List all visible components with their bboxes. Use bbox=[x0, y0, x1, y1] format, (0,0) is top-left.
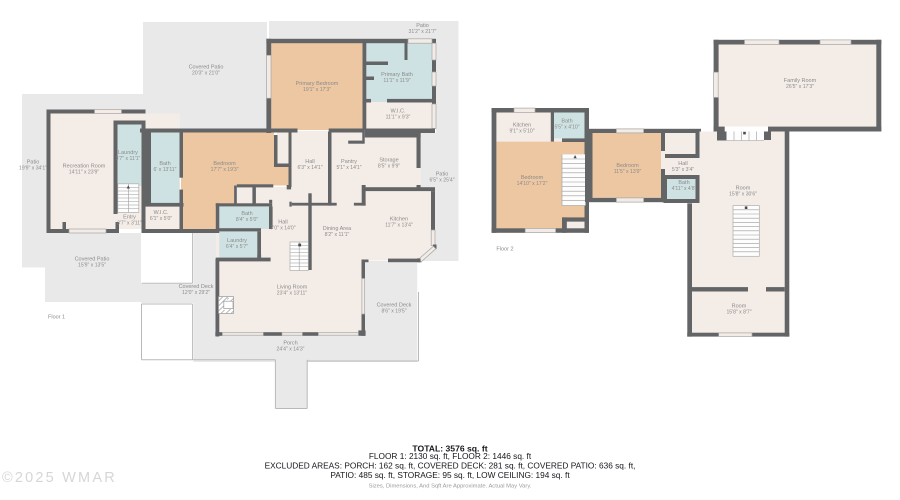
svg-text:9'1" x 5'10": 9'1" x 5'10" bbox=[509, 128, 534, 134]
svg-text:©2025 WMAR: ©2025 WMAR bbox=[2, 470, 117, 486]
svg-text:8'5" x 9'9": 8'5" x 9'9" bbox=[378, 163, 400, 169]
svg-text:19'9" x 34'1": 19'9" x 34'1" bbox=[19, 165, 47, 171]
svg-text:26'5" x 17'3": 26'5" x 17'3" bbox=[786, 84, 814, 90]
svg-text:5'3" x 3'4": 5'3" x 3'4" bbox=[672, 167, 694, 173]
svg-text:31'2" x 21'7": 31'2" x 21'7" bbox=[409, 29, 437, 35]
svg-text:Floor 2: Floor 2 bbox=[496, 247, 513, 253]
svg-text:8'6" x 19'5": 8'6" x 19'5" bbox=[381, 308, 406, 314]
svg-text:5'5" x 4'10": 5'5" x 4'10" bbox=[554, 124, 579, 130]
svg-text:19'1" x 17'3": 19'1" x 17'3" bbox=[303, 87, 331, 93]
svg-text:4'11" x 4'8": 4'11" x 4'8" bbox=[672, 186, 697, 192]
svg-text:11'7" x 13'4": 11'7" x 13'4" bbox=[385, 222, 413, 228]
svg-text:6' x 13'11": 6' x 13'11" bbox=[154, 167, 177, 173]
svg-text:11'1" x 9'3": 11'1" x 9'3" bbox=[386, 114, 411, 120]
svg-text:8'2" x 11'1": 8'2" x 11'1" bbox=[325, 232, 350, 238]
svg-text:5'1" x 14'1": 5'1" x 14'1" bbox=[336, 165, 361, 171]
svg-text:6'5" x 25'4": 6'5" x 25'4" bbox=[429, 177, 454, 183]
svg-text:15'8" x 30'6": 15'8" x 30'6" bbox=[729, 191, 757, 197]
svg-text:12'0" x 29'2": 12'0" x 29'2" bbox=[182, 290, 210, 296]
svg-text:23'4" x 13'11": 23'4" x 13'11" bbox=[277, 290, 308, 296]
svg-text:PATIO: 485 sq. ft, STORAGE: 95: PATIO: 485 sq. ft, STORAGE: 95 sq. ft, L… bbox=[330, 470, 570, 480]
svg-text:20'3" x 21'0": 20'3" x 21'0" bbox=[192, 70, 220, 76]
svg-text:8'4" x 5'0": 8'4" x 5'0" bbox=[236, 217, 258, 223]
svg-text:15'9" x 13'5": 15'9" x 13'5" bbox=[78, 262, 106, 268]
svg-text:6'4" x 5'7": 6'4" x 5'7" bbox=[226, 244, 248, 250]
svg-text:14'11" x 23'9": 14'11" x 23'9" bbox=[69, 169, 100, 175]
svg-text:3'7" x 3'11": 3'7" x 3'11" bbox=[117, 220, 142, 226]
svg-text:11'1" x 11'9": 11'1" x 11'9" bbox=[383, 78, 410, 84]
svg-text:Floor 1: Floor 1 bbox=[48, 315, 65, 321]
svg-text:Sizes, Dimensions, And Sqft Ar: Sizes, Dimensions, And Sqft Are Approxim… bbox=[369, 483, 532, 489]
svg-text:3'7" x 11'1": 3'7" x 11'1" bbox=[116, 156, 141, 162]
svg-text:15'8" x 8'7": 15'8" x 8'7" bbox=[726, 309, 751, 315]
svg-text:17'7" x 19'3": 17'7" x 19'3" bbox=[211, 167, 239, 173]
svg-text:14'10" x 17'2": 14'10" x 17'2" bbox=[517, 181, 548, 187]
svg-text:24'4" x 14'3": 24'4" x 14'3" bbox=[277, 346, 305, 352]
svg-text:6'1" x 5'0": 6'1" x 5'0" bbox=[150, 216, 172, 222]
svg-text:11'5" x 13'9": 11'5" x 13'9" bbox=[614, 169, 642, 175]
svg-text:7'0" x 14'0": 7'0" x 14'0" bbox=[270, 225, 295, 231]
svg-text:6'3" x 14'1": 6'3" x 14'1" bbox=[297, 165, 322, 171]
